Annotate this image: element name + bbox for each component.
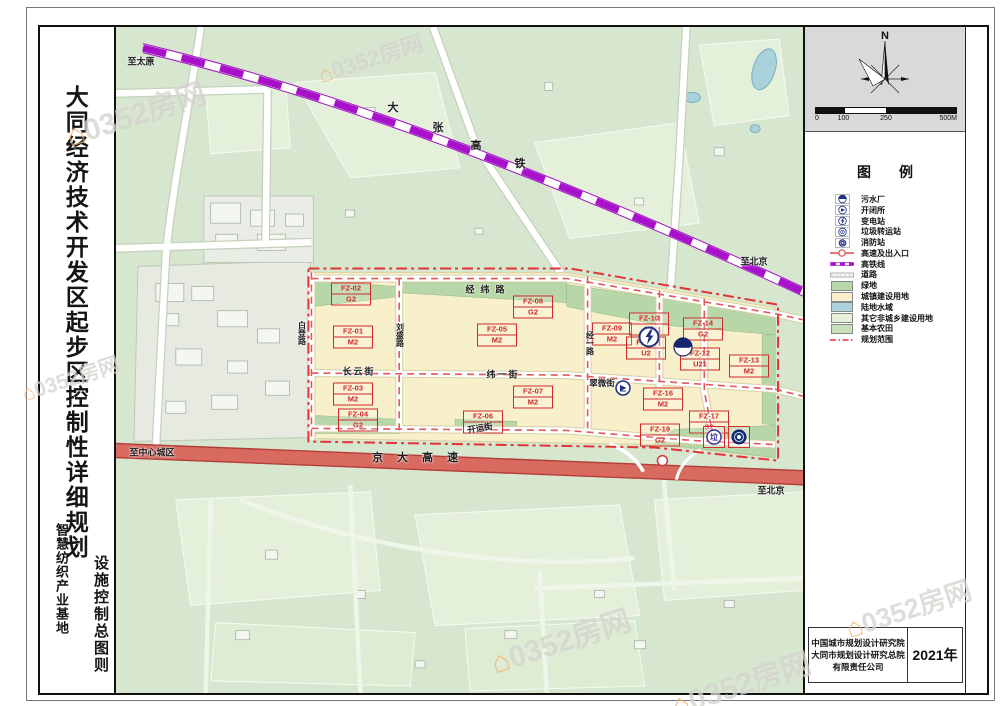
legend-item: 开闭所: [829, 205, 987, 216]
sewage-icon: [673, 337, 693, 357]
legend-label: 垃圾转运站: [861, 226, 901, 237]
map-area: FZ-02G2FZ-01M2FZ-03M2FZ-04G2FZ-05M2FZ-06…: [116, 27, 803, 693]
legend-title: 图 例: [805, 162, 965, 182]
garbage-legend-icon: [829, 227, 855, 237]
garbage-icon: 垃: [703, 426, 725, 448]
fill-legend-icon: [829, 313, 855, 323]
boundary-legend-icon: [829, 336, 855, 344]
legend-item: 其它非城乡建设用地: [829, 313, 987, 324]
legend-label: 城镇建设用地: [861, 291, 909, 302]
attribution-line: 有限责任公司: [832, 661, 883, 673]
legend-label: 道路: [861, 269, 877, 280]
attribution-year: 2021年: [908, 628, 962, 682]
legend-item: 变电站: [829, 216, 987, 227]
legend-label: 开闭所: [861, 205, 885, 216]
legend-label: 高速及出入口: [861, 248, 909, 259]
legend-label: 基本农田: [861, 323, 893, 334]
attribution-line: 中国城市规划设计研究院: [811, 637, 905, 649]
legend-item: 基本农田: [829, 324, 987, 335]
sewage-legend-icon: [829, 194, 855, 204]
fill-legend-icon: [829, 302, 855, 312]
highway-legend-icon: [829, 248, 855, 258]
legend-label: 变电站: [861, 216, 885, 227]
legend-label: 陆地水域: [861, 302, 893, 313]
legend-item: 绿地: [829, 280, 987, 291]
legend-item: 道路: [829, 270, 987, 281]
sheet-name: 设施控制总图则: [90, 555, 111, 674]
legend-label: 绿地: [861, 280, 877, 291]
title-sidebar: 大同经济技术开发区起步区控制性详细规划 智慧纺织产业基地 设施控制总图则: [40, 27, 116, 693]
legend-item: 高铁线: [829, 259, 987, 270]
legend-item: 高速及出入口: [829, 248, 987, 259]
legend-item: 消防站: [829, 237, 987, 248]
scale-tick: 0: [815, 115, 819, 122]
legend-list: 污水厂开闭所变电站垃圾转运站消防站高速及出入口高铁线道路绿地城镇建设用地陆地水域…: [829, 194, 987, 345]
legend-item: 规划范围: [829, 334, 987, 345]
legend-label: 规划范围: [861, 334, 893, 345]
compass-rose-icon: [847, 39, 923, 97]
fill-legend-icon: [829, 281, 855, 291]
legend-label: 高铁线: [861, 259, 885, 270]
switch-legend-icon: [829, 205, 855, 215]
subtitle: 智慧纺织产业基地: [52, 523, 71, 635]
legend-label: 污水厂: [861, 194, 885, 205]
road-legend-icon: [829, 271, 855, 279]
sheet-frame: 大同经济技术开发区起步区控制性详细规划 智慧纺织产业基地 设施控制总图则: [38, 25, 989, 695]
scale-tick: 500M: [939, 115, 957, 122]
substation-legend-icon: [829, 216, 855, 226]
attribution-line: 大同市规划设计研究总院: [811, 649, 905, 661]
scale-bar: 0 100 250 500M: [815, 107, 957, 125]
scale-tick: 100: [838, 115, 850, 122]
legend-item: 陆地水域: [829, 302, 987, 313]
main-title: 大同经济技术开发区起步区控制性详细规划: [58, 85, 92, 560]
map-facilities-layer: 垃: [116, 27, 803, 693]
fire-legend-icon: [829, 238, 855, 248]
attribution-box: 中国城市规划设计研究院 大同市规划设计研究总院 有限责任公司 2021年: [808, 627, 963, 683]
legend-label: 其它非城乡建设用地: [861, 313, 933, 324]
fill-legend-icon: [829, 292, 855, 302]
svg-text:垃: 垃: [710, 432, 718, 442]
switch-icon: [615, 380, 631, 396]
fire-icon: [728, 426, 750, 448]
north-scale-box: N 0 100 250 500M: [805, 27, 965, 132]
legend-item: 污水厂: [829, 194, 987, 205]
legend-label: 消防站: [861, 237, 885, 248]
plan-sheet: 大同经济技术开发区起步区控制性详细规划 智慧纺织产业基地 设施控制总图则: [0, 0, 1000, 706]
scale-tick: 250: [880, 115, 892, 122]
legend-item: 垃圾转运站: [829, 226, 987, 237]
right-panel: N 0 100 250 500M: [803, 27, 987, 693]
panel-inner-border: [965, 27, 966, 693]
substation-icon: [638, 326, 660, 348]
fill-legend-icon: [829, 324, 855, 334]
rail-legend-icon: [829, 260, 855, 268]
attribution-org: 中国城市规划设计研究院 大同市规划设计研究总院 有限责任公司: [809, 628, 908, 682]
legend-item: 城镇建设用地: [829, 291, 987, 302]
